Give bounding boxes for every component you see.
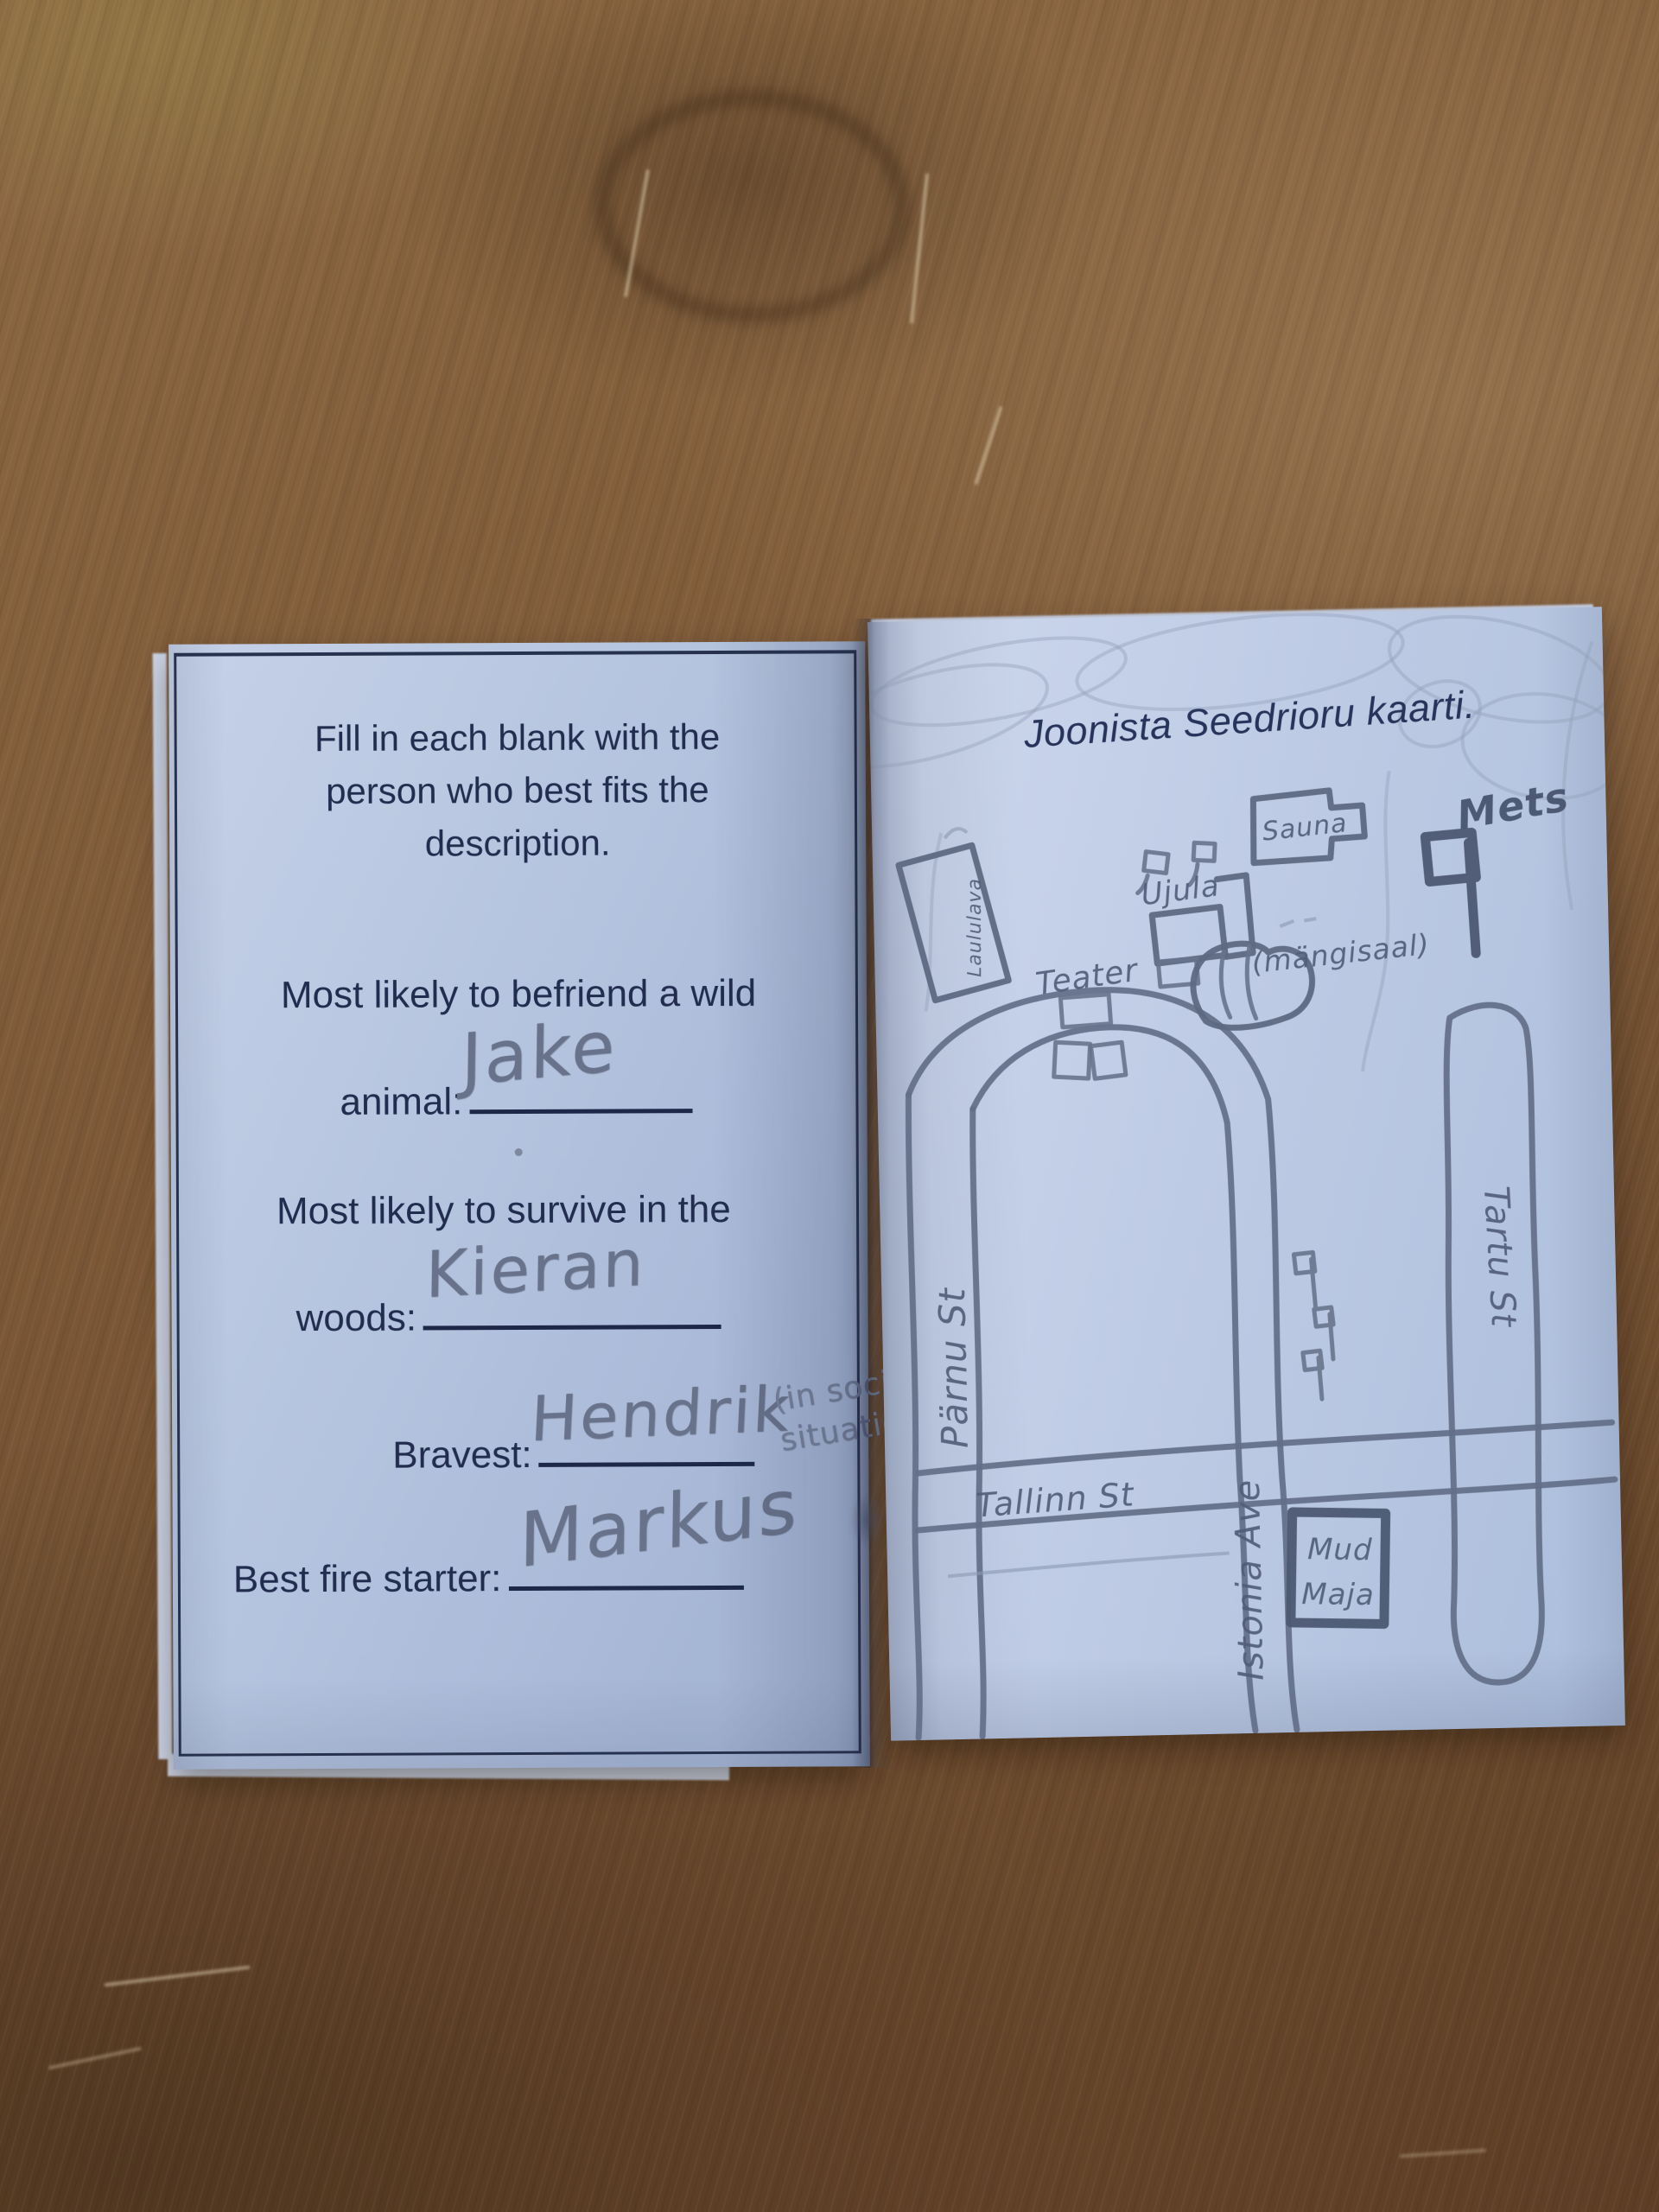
question1-answer-row: animal: Jake [340,1069,692,1124]
mud-maja-building: Mud Maja [1291,1512,1386,1624]
tartu-street-capsule [1441,1004,1545,1683]
question2-line1: Most likely to survive in the [276,1188,731,1233]
question3-answer-row: Bravest: Hendrik (in social situations) [392,1422,755,1478]
mud-maja-label-line1: Mud [1307,1532,1373,1567]
pencil-smudge [849,1493,884,1547]
small-square-doodle [1054,1042,1090,1078]
small-square-doodle [1090,1042,1125,1078]
mud-maja-label-line2: Maja [1301,1577,1375,1612]
extra-road-stroke [948,1553,1230,1576]
question2-label: woods: [296,1297,416,1340]
question3-label: Bravest: [392,1433,532,1477]
loop-road-inner [971,1025,1255,1737]
tallinn-street-top-line [918,1422,1613,1473]
laululava-stage-box: Laululava [899,844,1014,1001]
parnu-street-outer-line [905,1095,922,1738]
question4-answer-row: Best fire starter: Markus [233,1546,744,1602]
hand-drawn-pencil-map: Laululava Sauna Ujula Teater [868,607,1625,1741]
booklet-left-page: Fill in each blank with the person who b… [168,641,870,1770]
question2-answer-row: woods: Kieran [296,1285,721,1340]
istonia-avenue-label: Istonia Ave [1228,1478,1272,1681]
question4-label: Best fire starter: [233,1557,502,1600]
parnu-street-label: Pärnu St [931,1287,976,1449]
question1-handwritten-answer: Jake [461,1005,618,1102]
tallinn-street-label: Tallinn St [975,1475,1136,1524]
pencil-dot [515,1148,523,1156]
teater-building-outline [1060,995,1110,1027]
question1-line1: Most likely to befriend a wild [281,972,756,1017]
question1-label: animal: [340,1080,462,1123]
open-paper-booklet: Fill in each blank with the person who b… [147,612,1616,1804]
flag-doodle [1144,852,1168,874]
big-tree-glyph [1425,832,1478,954]
instructions-text: Fill in each blank with the person who b… [284,711,752,871]
small-tree-glyphs [1294,1252,1335,1400]
booklet-right-page: Joonista Seedrioru kaarti. [868,607,1625,1741]
photo-scene: Fill in each blank with the person who b… [0,0,1659,2212]
flag-doodle [1193,842,1215,861]
question3-handwritten-answer: Hendrik [529,1372,793,1455]
laululava-label: Laululava [964,878,986,977]
question2-handwritten-answer: Kieran [425,1226,646,1313]
tartu-street-label: Tartu St [1476,1185,1523,1329]
ujula-building-outline [1152,906,1225,963]
mangisaal-label: (mängisaal) [1250,927,1432,980]
